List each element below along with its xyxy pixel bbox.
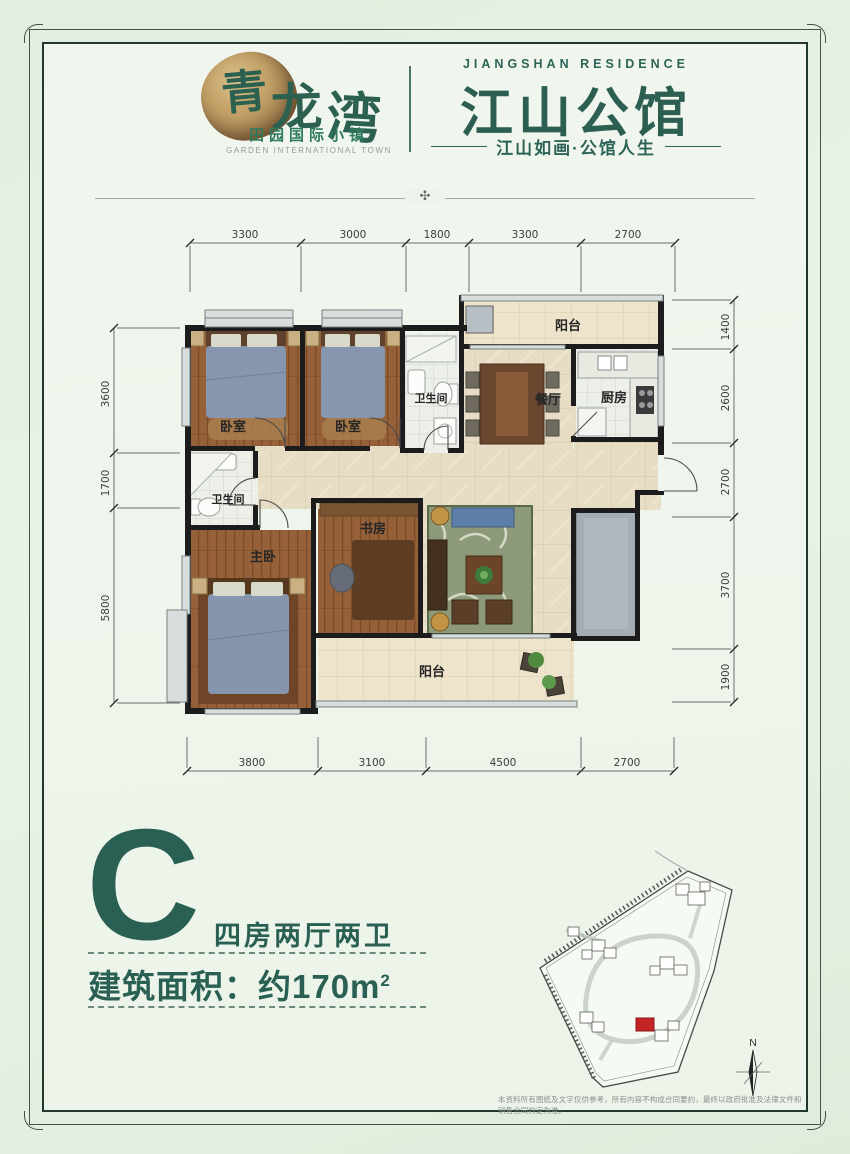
dim-top: 3000 [340, 229, 367, 241]
dim-right: 1400 [720, 314, 732, 341]
room-label-bed2: 卧室 [335, 419, 361, 434]
unit-area: 建筑面积：约170m2 [88, 960, 391, 1008]
dim-bottom: 3800 [239, 757, 266, 769]
floorplan-poster: 青 龙 湾 田园国际小镇 GARDEN INTERNATIONAL TOWN J… [0, 0, 850, 1154]
dim-left: 1700 [100, 470, 112, 497]
room-label-dining: 餐厅 [534, 392, 561, 407]
dim-right: 2600 [720, 385, 732, 412]
room-label-balcony-top: 阳台 [555, 318, 581, 333]
site-plan [540, 851, 732, 1087]
dim-left: 3600 [100, 381, 112, 408]
ac-unit [466, 306, 493, 333]
dashed-divider [88, 952, 426, 954]
dim-bottom: 4500 [490, 757, 517, 769]
dashed-divider [88, 1006, 426, 1008]
room-label-balcony-bottom: 阳台 [419, 664, 445, 679]
disclaimer-text: 本资料所有图纸及文字仅供参考，所有内容不构成合同要约，最终以政府批准及法律文件和… [498, 1094, 806, 1116]
room-label-bed1: 卧室 [220, 419, 246, 434]
dim-bottom: 2700 [614, 757, 641, 769]
dim-top: 1800 [424, 229, 451, 241]
unit-letter: C [86, 806, 200, 964]
room-label-study: 书房 [360, 521, 386, 536]
area-superscript: 2 [380, 971, 390, 990]
room-label-bath1: 卫生间 [415, 391, 448, 405]
dim-top: 3300 [512, 229, 539, 241]
dim-bottom: 3100 [359, 757, 386, 769]
dim-right: 3700 [720, 572, 732, 599]
dim-top: 2700 [615, 229, 642, 241]
dim-right: 1900 [720, 664, 732, 691]
room-label-bath2: 卫生间 [212, 492, 245, 506]
compass: N [736, 1037, 770, 1096]
room-label-kitchen: 厨房 [601, 390, 627, 405]
dim-right: 2700 [720, 469, 732, 496]
unit-type-label: 四房两厅两卫 [214, 914, 394, 953]
compass-north-label: N [749, 1037, 757, 1049]
highlighted-building [636, 1018, 654, 1031]
room-label-master: 主卧 [250, 549, 276, 564]
dim-left: 5800 [100, 595, 112, 622]
dim-top: 3300 [232, 229, 259, 241]
